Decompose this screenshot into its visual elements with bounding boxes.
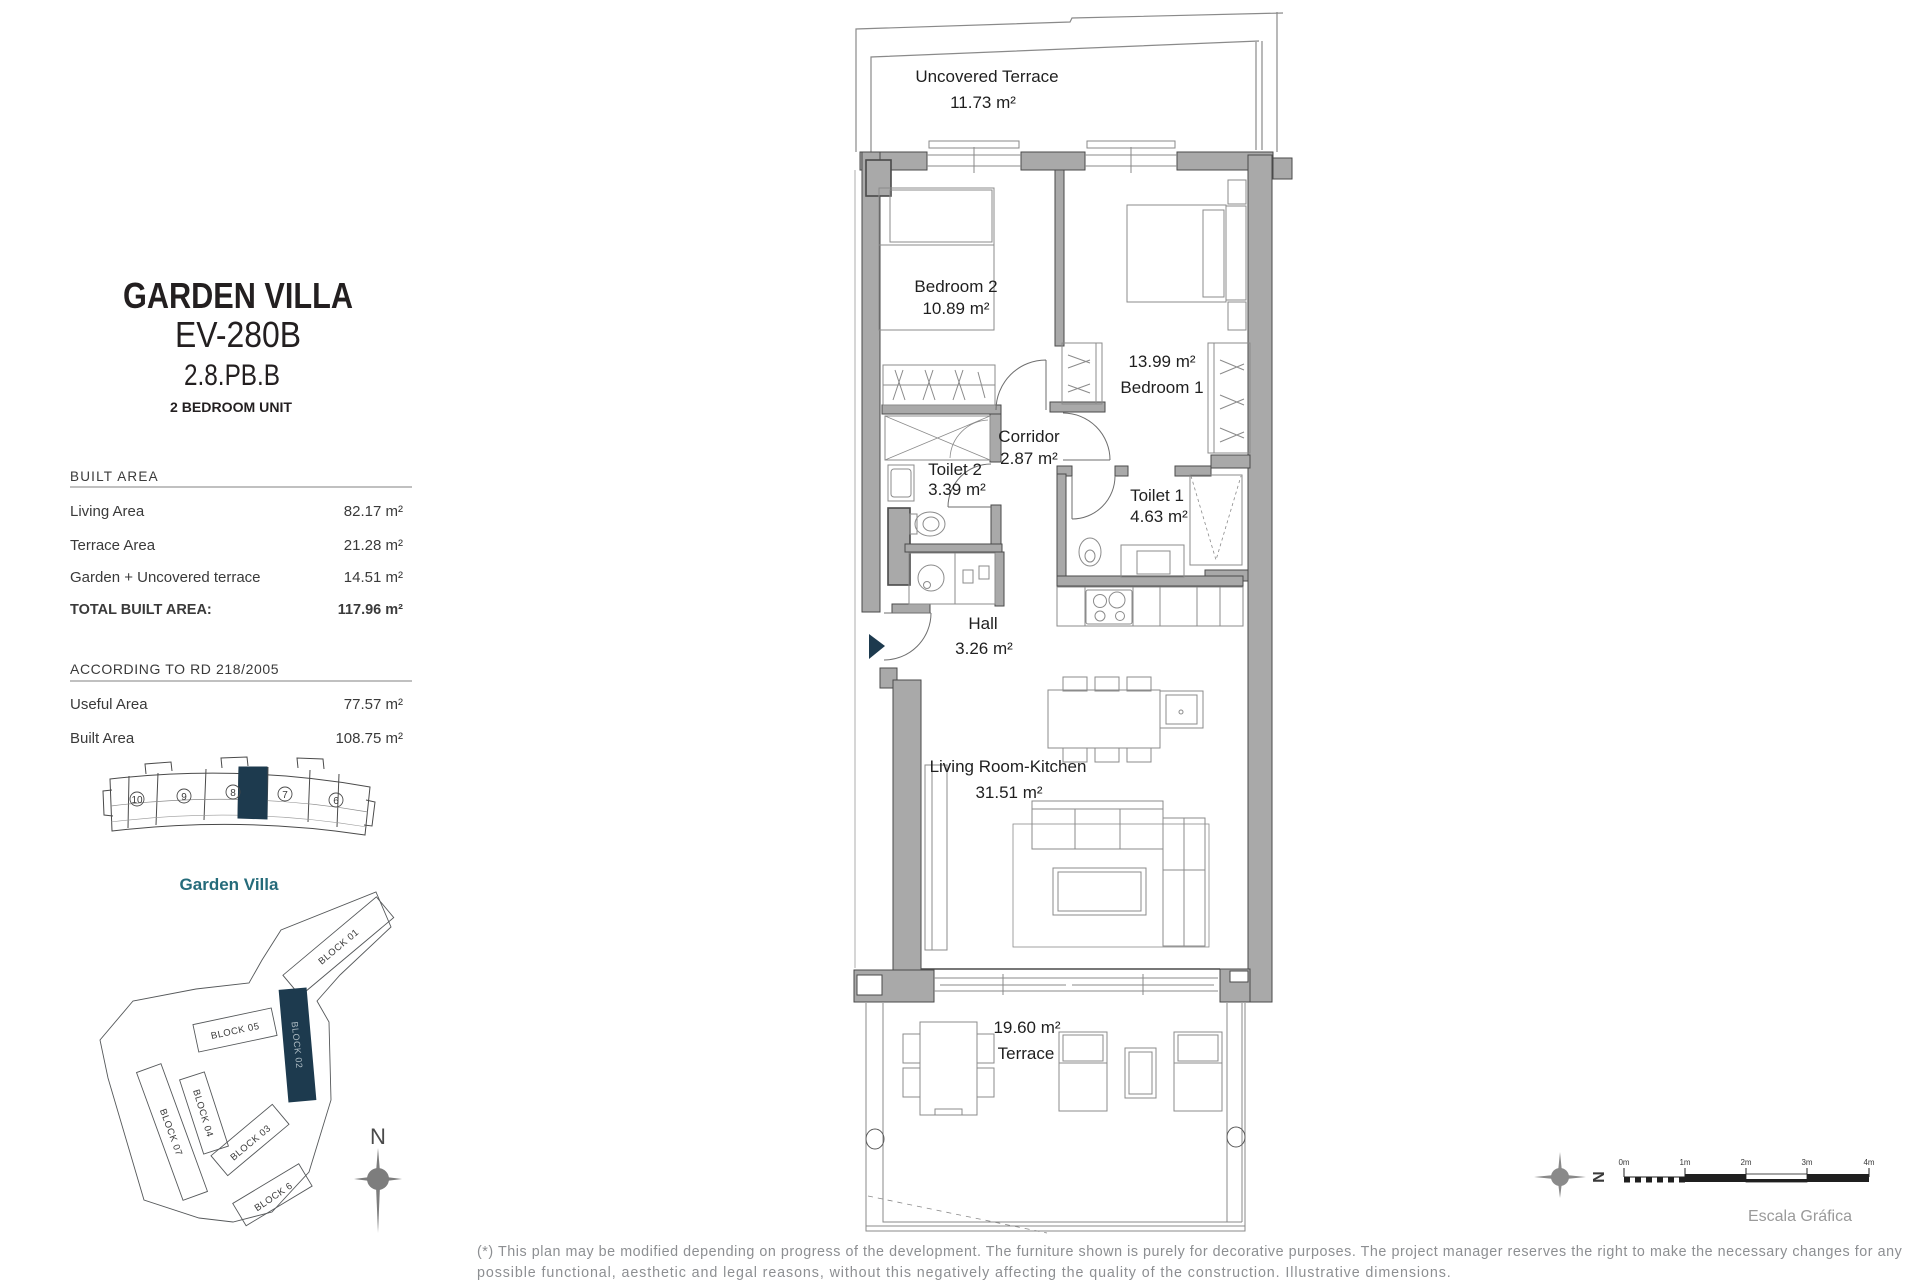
svg-text:3.26 m²: 3.26 m² (955, 639, 1013, 658)
svg-text:Built Area: Built Area (70, 730, 135, 747)
svg-text:Bedroom 2: Bedroom 2 (914, 277, 997, 296)
svg-text:31.51 m²: 31.51 m² (975, 783, 1042, 802)
svg-text:1m: 1m (1679, 1158, 1690, 1167)
svg-text:Living Room-Kitchen: Living Room-Kitchen (930, 757, 1087, 776)
svg-text:19.60 m²: 19.60 m² (993, 1018, 1060, 1037)
svg-text:Toilet 1: Toilet 1 (1130, 486, 1184, 505)
svg-text:EV-280B: EV-280B (175, 314, 301, 355)
svg-text:21.28 m²: 21.28 m² (344, 537, 403, 554)
svg-text:BLOCK 07: BLOCK 07 (157, 1107, 184, 1157)
svg-text:Terrace: Terrace (998, 1044, 1055, 1063)
svg-text:(*) This plan may be modified: (*) This plan may be modified depending … (477, 1244, 1903, 1260)
svg-text:6: 6 (333, 796, 339, 807)
svg-text:Toilet 2: Toilet 2 (928, 460, 982, 479)
svg-text:10: 10 (131, 795, 143, 806)
svg-text:Escala Gráfica: Escala Gráfica (1748, 1208, 1852, 1225)
svg-text:7: 7 (282, 790, 288, 801)
svg-text:N: N (1589, 1171, 1606, 1183)
svg-text:117.96 m²: 117.96 m² (338, 602, 403, 618)
svg-text:Living Area: Living Area (70, 503, 145, 520)
svg-text:TOTAL BUILT AREA:: TOTAL BUILT AREA: (70, 602, 212, 618)
svg-text:14.51 m²: 14.51 m² (344, 569, 403, 586)
svg-text:Uncovered Terrace: Uncovered Terrace (915, 67, 1058, 86)
svg-text:N: N (370, 1124, 386, 1149)
svg-text:Garden + Uncovered terrace: Garden + Uncovered terrace (70, 569, 261, 586)
svg-text:GARDEN VILLA: GARDEN VILLA (123, 275, 353, 316)
svg-text:Corridor: Corridor (998, 427, 1060, 446)
svg-text:2.87 m²: 2.87 m² (1000, 449, 1058, 468)
svg-text:10.89 m²: 10.89 m² (922, 299, 989, 318)
svg-text:2.8.PB.B: 2.8.PB.B (184, 359, 280, 392)
svg-text:108.75 m²: 108.75 m² (335, 730, 403, 747)
svg-text:4.63 m²: 4.63 m² (1130, 507, 1188, 526)
svg-text:0m: 0m (1618, 1158, 1629, 1167)
svg-text:Useful Area: Useful Area (70, 696, 148, 713)
svg-text:13.99 m²: 13.99 m² (1128, 352, 1195, 371)
svg-text:Bedroom 1: Bedroom 1 (1120, 378, 1203, 397)
svg-text:BLOCK 05: BLOCK 05 (210, 1021, 261, 1042)
svg-text:3.39 m²: 3.39 m² (928, 480, 986, 499)
svg-text:BLOCK 04: BLOCK 04 (190, 1088, 215, 1138)
svg-text:82.17 m²: 82.17 m² (344, 503, 403, 520)
svg-text:9: 9 (181, 792, 187, 803)
svg-text:Hall: Hall (968, 614, 997, 633)
svg-text:4m: 4m (1863, 1158, 1874, 1167)
svg-text:8: 8 (230, 788, 236, 799)
svg-text:Terrace Area: Terrace Area (70, 537, 156, 554)
svg-text:3m: 3m (1801, 1158, 1812, 1167)
svg-text:2 BEDROOM UNIT: 2 BEDROOM UNIT (170, 400, 293, 415)
svg-text:Garden Villa: Garden Villa (180, 875, 279, 894)
svg-text:11.73 m²: 11.73 m² (950, 93, 1016, 112)
svg-text:BUILT AREA: BUILT AREA (70, 469, 159, 484)
svg-text:possible functional, aesthetic: possible functional, aesthetic and legal… (477, 1265, 1452, 1280)
svg-text:2m: 2m (1740, 1158, 1751, 1167)
svg-text:ACCORDING TO RD 218/2005: ACCORDING TO RD 218/2005 (70, 661, 279, 677)
svg-text:77.57 m²: 77.57 m² (344, 696, 403, 713)
